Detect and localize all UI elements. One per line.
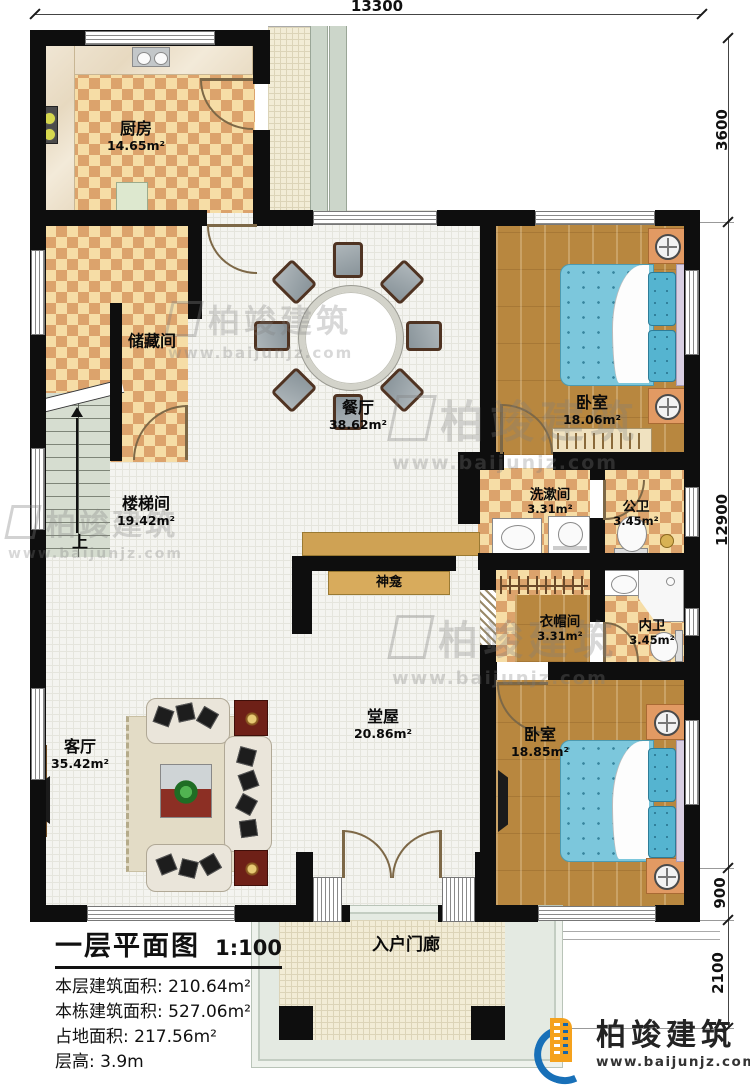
bed-pillow — [648, 272, 676, 326]
window-bed2-right — [685, 720, 699, 805]
sofa-pillow — [175, 702, 195, 722]
privatebath-sink — [604, 570, 640, 596]
window-dining-top — [313, 211, 437, 225]
company-name: 柏竣建筑 — [596, 1021, 750, 1051]
washroom-sink-counter — [492, 518, 542, 554]
company-logo-icon — [536, 1016, 588, 1074]
nightstand — [646, 858, 686, 894]
ground-edge-line — [563, 931, 720, 940]
room-label-publicbath: 公卫3.45m² — [613, 499, 658, 529]
dim-label-top: 13300 — [351, 0, 403, 15]
walkway-band — [310, 26, 328, 213]
publicbath-door-leaf — [603, 480, 606, 520]
dining-chair — [406, 321, 442, 351]
bed-pillow — [648, 748, 676, 802]
room-label-bedroom1: 卧室18.06m² — [563, 393, 621, 427]
window-storage-left — [31, 250, 45, 335]
nightstand — [646, 704, 686, 740]
bed-pillow — [648, 330, 676, 382]
room-label-cloakroom: 衣帽间3.31m² — [537, 614, 582, 644]
kitchen-dining-door-leaf — [207, 224, 257, 227]
info-floor-area: 本层建筑面积: 210.64m² — [55, 975, 282, 1000]
sofa-pillow — [239, 819, 258, 838]
stair-up-arrowhead — [71, 407, 83, 417]
wall-stair-divider — [110, 303, 122, 461]
room-label-storage: 储藏间 — [128, 331, 176, 350]
watermark: 柏竣建筑 www.baijunjz.com — [392, 608, 618, 689]
side-table — [234, 850, 268, 886]
room-label-living: 客厅35.42m² — [51, 737, 109, 771]
bed-pillow — [648, 806, 676, 858]
dining-chair — [333, 242, 363, 278]
wall-shrine-leg — [292, 556, 312, 634]
watermark: 柏竣建筑 www.baijunjz.com — [168, 296, 353, 362]
plan-title: 一层平面图 — [55, 924, 200, 963]
plant-icon — [172, 778, 200, 806]
window-privatebath-right — [685, 608, 699, 636]
wall-washrow-bottom — [478, 553, 700, 570]
wall-bottom-d — [655, 905, 700, 922]
room-label-porch: 入户门廊 — [372, 935, 440, 955]
altar-table — [302, 532, 480, 556]
porch-sidelight-left — [313, 877, 342, 922]
wall-dining-top-b — [437, 210, 535, 226]
wall-kitchen-right-a — [253, 30, 270, 84]
wall-cloak-left-a — [480, 568, 496, 590]
room-label-washroom: 洗漱间3.31m² — [527, 487, 572, 517]
wall-kitchen-storage — [30, 210, 207, 226]
dim-label-right-2100: 2100 — [709, 952, 727, 994]
storage-door-leaf — [185, 405, 188, 460]
window-living-bottom — [87, 906, 235, 921]
window-bed1-right — [685, 270, 699, 355]
info-block: 一层平面图 1:100 本层建筑面积: 210.64m² 本栋建筑面积: 527… — [55, 924, 282, 1075]
company-logo: 柏竣建筑 www.baijunjz.com — [536, 1016, 750, 1074]
room-label-privatebath: 内卫3.45m² — [629, 618, 674, 648]
dim-label-right-900: 900 — [711, 877, 729, 908]
room-label-stairwell: 楼梯间19.42m² — [117, 494, 175, 528]
room-label-shrine: 神龛 — [376, 575, 402, 591]
window-bed2-bottom — [538, 906, 656, 921]
window-kitchen-top — [85, 31, 215, 45]
room-label-hall: 堂屋20.86m² — [354, 707, 412, 741]
wall-shrine — [292, 556, 456, 571]
wall-bottom-a — [30, 905, 87, 922]
kitchen-table — [116, 182, 148, 212]
washing-machine — [548, 516, 590, 554]
window-living-left — [31, 688, 45, 780]
room-label-kitchen: 厨房14.65m² — [107, 119, 165, 153]
plan-scale: 1:100 — [215, 936, 282, 960]
porch-sidelight-right — [442, 877, 475, 922]
floor-drain-icon — [660, 534, 674, 548]
side-table — [234, 700, 268, 736]
kitchen-sink — [132, 47, 170, 67]
dim-label-right-12900: 12900 — [713, 494, 731, 546]
porch-pillar-left — [279, 1006, 313, 1040]
window-bed1-top — [535, 211, 655, 225]
nightstand — [648, 228, 686, 264]
porch-jamb-right — [475, 852, 492, 922]
window-publicbath-right — [685, 487, 699, 537]
walkway-band — [329, 26, 347, 213]
stairs-up-label: 上 — [72, 532, 88, 551]
plan-title-row: 一层平面图 1:100 — [55, 924, 282, 969]
info-floor-height: 层高: 3.9m — [55, 1050, 282, 1075]
room-label-bedroom2: 卧室18.85m² — [511, 725, 569, 759]
porch-jamb-left — [296, 852, 313, 922]
floor-plan: 厨房14.65m² 储藏间 餐厅38.62m² 卧室18.06m² 洗漱间3.3… — [0, 0, 750, 1089]
room-label-dining: 餐厅38.62m² — [329, 398, 387, 432]
wall-wash-divider-b — [590, 518, 605, 556]
tv-icon — [498, 770, 508, 832]
nightstand — [648, 388, 686, 424]
entry-door-right-leaf — [439, 830, 442, 878]
cloakroom-hanger-rail — [500, 576, 588, 594]
side-walkway — [268, 26, 310, 214]
dim-label-right-3600: 3600 — [713, 109, 731, 151]
porch-pillar-right — [471, 1006, 505, 1040]
company-website: www.baijunjz.com — [596, 1054, 750, 1070]
wall-dining-top-a — [253, 210, 313, 226]
info-footprint-area: 占地面积: 217.56m² — [55, 1025, 282, 1050]
info-building-area: 本栋建筑面积: 527.06m² — [55, 1000, 282, 1025]
kitchen-door-leaf — [200, 78, 253, 81]
entry-door-left-leaf — [342, 830, 345, 878]
